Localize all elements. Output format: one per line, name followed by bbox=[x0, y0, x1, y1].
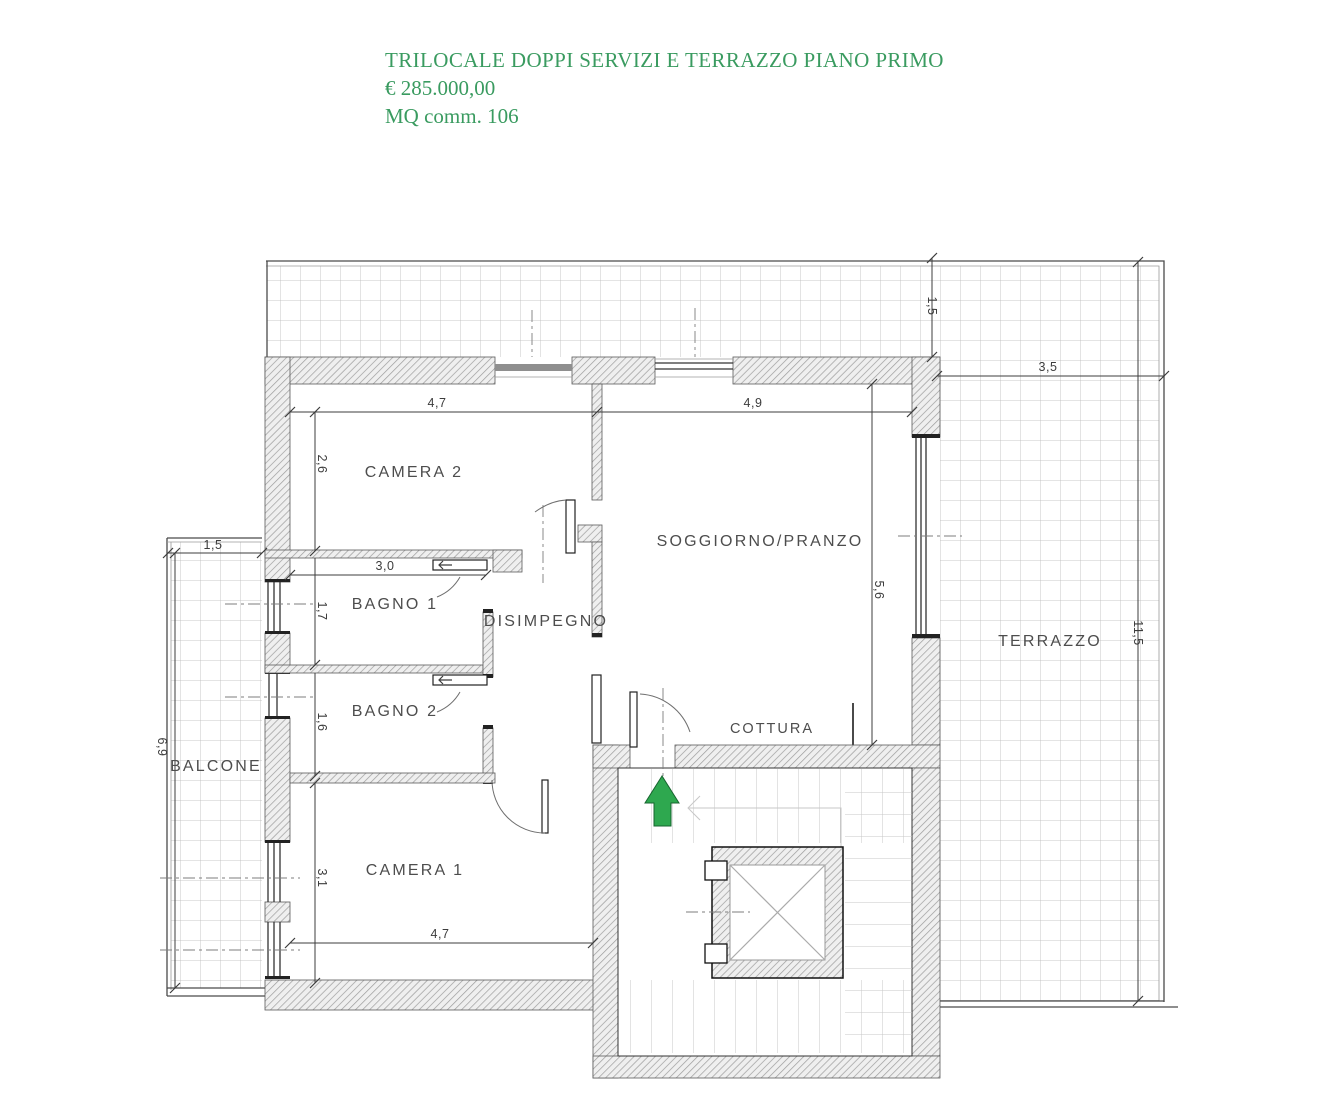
room-label-camera1: CAMERA 1 bbox=[366, 862, 465, 879]
listing-header: TRILOCALE DOPPI SERVIZI E TERRAZZO PIANO… bbox=[385, 46, 944, 130]
window-bagno1 bbox=[265, 579, 290, 634]
door-camera2 bbox=[535, 500, 575, 583]
dim-bagno1-depth: 1,7 bbox=[315, 602, 329, 621]
window-camera1-b bbox=[265, 922, 290, 979]
door-entrance bbox=[630, 692, 690, 747]
room-label-soggiorno: SOGGIORNO/PRANZO bbox=[657, 533, 864, 550]
dim-terrace-right-width: 3,5 bbox=[1039, 360, 1058, 374]
window-bagno2 bbox=[265, 671, 290, 719]
door-bagno2 bbox=[433, 675, 487, 712]
room-label-terrazzo: TERRAZZO bbox=[998, 633, 1102, 650]
dim-terrace-top-depth: 1,5 bbox=[925, 297, 939, 316]
dim-camera2-width: 4,7 bbox=[428, 396, 447, 410]
room-label-cottura: COTTURA bbox=[730, 721, 814, 737]
room-label-disimpegno: DISIMPEGNO bbox=[484, 613, 608, 630]
dim-soggiorno-depth: 5,6 bbox=[872, 581, 886, 600]
dim-soggiorno-width: 4,9 bbox=[744, 396, 763, 410]
terrace-right-tiles bbox=[940, 357, 1159, 1001]
terrace-top-tiles bbox=[267, 266, 1159, 357]
door-cottura-panel bbox=[592, 675, 601, 743]
dim-camera1-depth: 3,1 bbox=[315, 869, 329, 888]
room-label-balcone: BALCONE bbox=[170, 758, 262, 775]
listing-title: TRILOCALE DOPPI SERVIZI E TERRAZZO PIANO… bbox=[385, 46, 944, 74]
dim-camera2-depth: 2,6 bbox=[315, 455, 329, 474]
window-camera2-top bbox=[495, 364, 572, 371]
room-label-camera2: CAMERA 2 bbox=[365, 464, 464, 481]
dim-balcone-width: 1,5 bbox=[204, 538, 223, 552]
listing-area: MQ comm. 106 bbox=[385, 102, 944, 130]
dim-bagno2-depth: 1,6 bbox=[315, 713, 329, 732]
door-bagno1 bbox=[433, 560, 487, 597]
stairs-bottom-run bbox=[630, 980, 912, 1053]
room-label-bagno1: BAGNO 1 bbox=[352, 596, 439, 613]
listing-price: € 285.000,00 bbox=[385, 74, 944, 102]
dim-balcone-length: 6,9 bbox=[155, 738, 169, 757]
window-camera1-a bbox=[265, 840, 290, 902]
dim-terrace-right-length: 11,5 bbox=[1131, 620, 1145, 645]
stairwell bbox=[618, 688, 912, 1056]
door-camera1 bbox=[492, 780, 548, 833]
dim-bagno1-width: 3,0 bbox=[376, 559, 395, 573]
window-soggiorno-top bbox=[655, 359, 733, 377]
dim-camera1-width: 4,7 bbox=[431, 927, 450, 941]
room-label-bagno2: BAGNO 2 bbox=[352, 703, 439, 720]
floor-plan-drawing: 4,7 4,9 2,6 3,0 1,7 1,6 3,1 bbox=[0, 0, 1333, 1096]
floor-plan-page: TRILOCALE DOPPI SERVIZI E TERRAZZO PIANO… bbox=[0, 0, 1333, 1096]
